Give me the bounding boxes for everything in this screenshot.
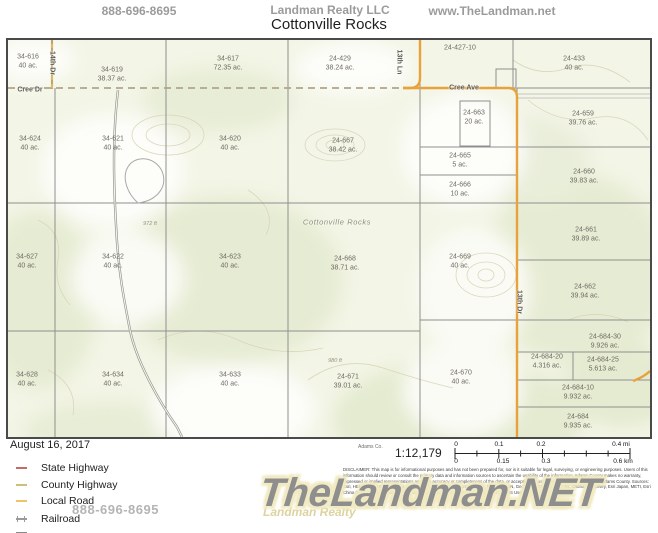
parcel-24-662: 24-66239.94 ac. xyxy=(571,283,600,302)
parcel-34-624: 34-62440 ac. xyxy=(19,135,41,154)
parcel-24-669: 24-66940 ac. xyxy=(449,253,471,272)
scale-ratio: 1:12,179 xyxy=(395,446,442,460)
road-label-14th-dr: 14th Dr xyxy=(49,51,56,75)
local-road-swatch xyxy=(16,500,27,502)
elevation-label: 980 ft xyxy=(328,358,342,364)
legend-label: State Highway xyxy=(41,462,109,474)
parcel-34-622: 34-62240 ac. xyxy=(102,253,124,272)
header-website: www.TheLandman.net xyxy=(429,4,556,18)
legend-label: County Highway xyxy=(41,479,117,491)
elevation-label: 972 ft xyxy=(143,221,157,227)
road-label-13th-ln: 13th Ln xyxy=(396,50,403,75)
parcel-34-627: 34-62740 ac. xyxy=(16,253,38,272)
parcel-24-684-30: 24-684-309.926 ac. xyxy=(589,333,621,352)
road-label-13th-dr: 13th Dr xyxy=(516,290,523,314)
parcel-34-619: 34-61938.37 ac. xyxy=(98,66,127,85)
parcel-24-667: 24-66738.42 ac. xyxy=(329,137,358,156)
parcel-24-429: 24-42938.24 ac. xyxy=(326,55,355,74)
parcel-24-684-25: 24-684-255.613 ac. xyxy=(587,356,619,375)
map-date: August 16, 2017 xyxy=(10,439,90,451)
parcel-34-621: 34-62140 ac. xyxy=(102,135,124,154)
parcel-24-427-10: 24-427-10 xyxy=(444,43,476,52)
parcel-24-666: 24-66610 ac. xyxy=(449,181,471,200)
watermark-phone: 888-696-8695 xyxy=(72,502,159,517)
parcel-24-684-10: 24-684-109.932 ac. xyxy=(562,384,594,403)
legend-item-railroad: Railroad xyxy=(16,513,80,525)
railroad-swatch xyxy=(16,518,27,520)
parcel-24-663: 24-66320 ac. xyxy=(463,109,485,128)
parcel-34-633: 34-63340 ac. xyxy=(219,371,241,390)
parcel-34-617: 34-61772.35 ac. xyxy=(214,55,243,74)
watermark-thelandman: TheLandman.NET xyxy=(258,471,603,516)
parcel-34-634: 34-63440 ac. xyxy=(102,371,124,390)
parcel-24-668: 24-66838.71 ac. xyxy=(331,255,360,274)
legend-item-unlabeled xyxy=(16,527,41,533)
map-canvas: 34-61640 ac.34-61938.37 ac.34-61772.35 a… xyxy=(8,40,650,437)
scale-tick-label: 0.4 mi xyxy=(612,441,630,448)
place-label: Cottonville Rocks xyxy=(303,218,371,227)
page-title: Cottonville Rocks xyxy=(271,16,387,33)
railroad-tick xyxy=(24,516,25,522)
header-brand: Landman Realty LLC xyxy=(270,3,389,17)
parcel-24-670: 24-67040 ac. xyxy=(450,369,472,388)
railroad-tick xyxy=(17,516,18,522)
parcel-34-616: 34-61640 ac. xyxy=(17,53,39,72)
parcel-24-659: 24-65939.76 ac. xyxy=(569,110,598,129)
parcel-24-660: 24-66039.83 ac. xyxy=(570,168,599,187)
parcel-24-671: 24-67139.01 ac. xyxy=(334,373,363,392)
county-highway-swatch xyxy=(16,484,27,486)
county-label: Adams Co. xyxy=(358,444,383,450)
legend-item-county-highway: County Highway xyxy=(16,479,117,491)
parcel-24-684-20: 24-684-204.316 ac. xyxy=(531,353,563,372)
parcel-24-684: 24-6849.935 ac. xyxy=(564,413,593,432)
legend-item-state-highway: State Highway xyxy=(16,462,109,474)
scale-tick-label: 0.3 xyxy=(541,458,550,465)
parcel-24-665: 24-6655 ac. xyxy=(449,152,471,171)
parcel-24-661: 24-66139.89 ac. xyxy=(572,226,601,245)
scale-tick-label: 0 xyxy=(454,458,458,465)
header-phone: 888-696-8695 xyxy=(102,4,177,18)
scale-tick-label: 0.2 xyxy=(536,441,545,448)
parcel-34-623: 34-62340 ac. xyxy=(219,253,241,272)
scale-tick-label: 0 xyxy=(454,441,458,448)
state-highway-swatch xyxy=(16,467,27,469)
scale-tick-label: 0.15 xyxy=(497,458,510,465)
scale-tick-label: 0.1 xyxy=(494,441,503,448)
road-label-cree-dr: Cree Dr xyxy=(17,87,42,94)
parcel-24-433: 24-43340 ac. xyxy=(563,55,585,74)
parcel-34-628: 34-62840 ac. xyxy=(16,371,38,390)
parcel-34-620: 34-62040 ac. xyxy=(219,135,241,154)
scale-tick-label: 0.6 km xyxy=(613,458,633,465)
road-label-cree-ave: Cree Ave xyxy=(449,85,479,92)
